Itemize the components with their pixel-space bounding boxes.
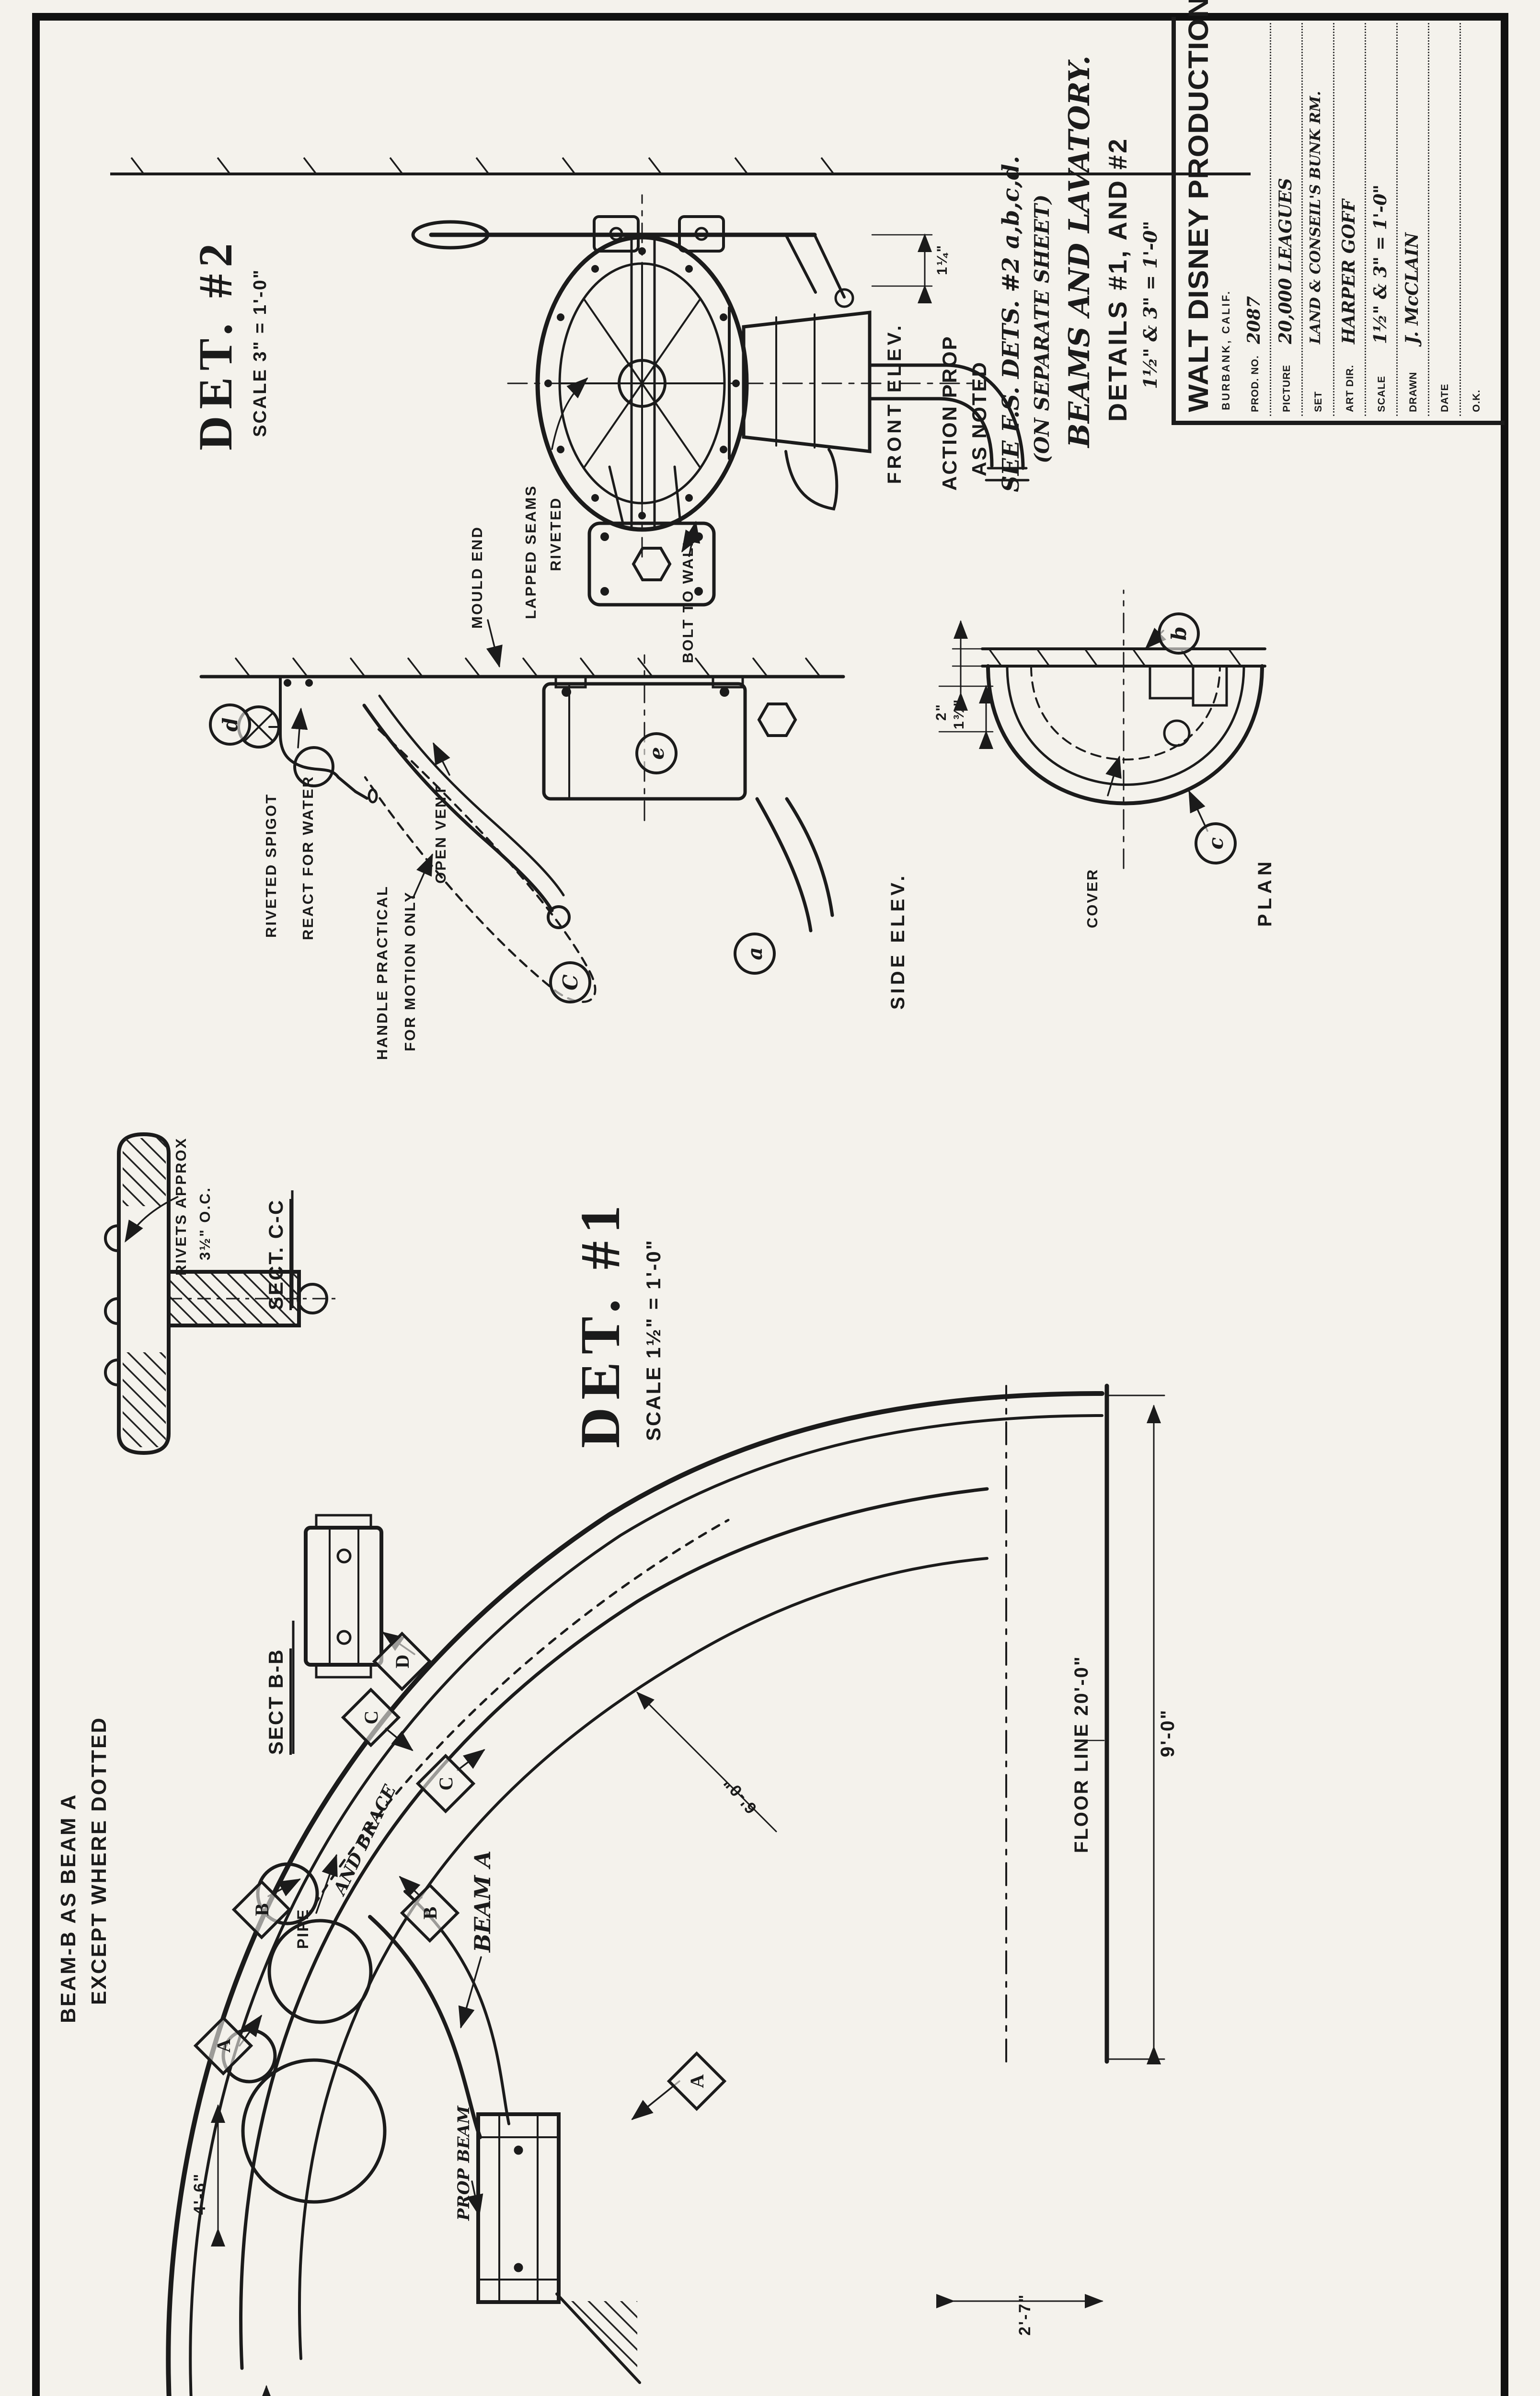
beam-a-label: BEAM A: [470, 1851, 495, 1952]
title-block-row: O.K.: [1460, 23, 1491, 416]
side-dim: 1¾": [951, 698, 967, 729]
det1-scale: SCALE 1½" = 1'-0": [642, 1239, 665, 1441]
side-elev-spigot: [201, 620, 993, 1002]
marker-letter: B: [419, 1907, 441, 1920]
row-label: DRAWN: [1408, 372, 1419, 412]
hull-inner-plate: [190, 1416, 1102, 2396]
note-separate-sheet: (ON SEPARATE SHEET): [1030, 195, 1054, 463]
row-label: PROD. NO.: [1250, 355, 1261, 412]
balloon-a: a: [734, 933, 776, 975]
title-block: WALT DISNEY PRODUCTIONS BURBANK, CALIF. …: [1172, 17, 1505, 425]
note-details-1-2: DETAILS #1, AND #2: [1103, 137, 1133, 422]
row-label: O.K.: [1471, 390, 1483, 412]
beam-note-line1: BEAM-B AS BEAM A: [57, 1793, 80, 2023]
row-value: 20,000 LEAGUES: [1276, 178, 1296, 344]
pump-handle: [413, 217, 853, 307]
beam-band-outer: [241, 1489, 987, 2368]
marker-letter: A: [685, 2074, 708, 2088]
front-dim: 1¼": [934, 244, 951, 275]
row-label: ART DIR.: [1345, 365, 1356, 412]
balloon-letter: a: [743, 947, 767, 960]
note-action-prop: ACTION PROP: [938, 335, 961, 491]
rivets-note-line1: RIVETS APPROX: [172, 1137, 190, 1276]
det2-scale: SCALE 3" = 1'-0": [250, 268, 271, 437]
mould-end-label: MOULD END: [469, 526, 486, 629]
row-label: DATE: [1439, 383, 1451, 412]
row-label: SET: [1313, 391, 1324, 412]
lapped-seams-line1: LAPPED SEAMS: [522, 484, 540, 619]
row-value: 2087: [1244, 296, 1264, 344]
prop-beam-drawing: [478, 2114, 559, 2302]
row-value: 1½" & 3" = 1'-0": [1370, 184, 1391, 344]
beam-note-line2: EXCEPT WHERE DOTTED: [87, 1716, 111, 2005]
bolt-to-wall-label: BOLT TO WALL: [679, 536, 697, 663]
balloon-letter: C: [559, 974, 582, 990]
balloon-letter: e: [645, 747, 668, 760]
balloon-b: b: [1158, 612, 1200, 655]
det1-title: DET. #1: [568, 1198, 633, 1448]
front-elev-title: FRONT ELEV.: [884, 322, 906, 484]
handle-practical-line1: HANDLE PRACTICAL: [374, 885, 391, 1060]
prop-beam-label: PROP BEAM: [454, 2106, 473, 2221]
sect-bb-label: SECT B-B: [264, 1648, 292, 1755]
title-block-row: SCALE 1½" & 3" = 1'-0": [1365, 23, 1398, 416]
marker-letter: C: [434, 1777, 457, 1791]
plan-title: PLAN: [1254, 857, 1276, 927]
row-value: LAND & CONSEIL'S BUNK RM.: [1307, 91, 1324, 344]
row-label: PICTURE: [1281, 365, 1293, 412]
title-block-row: DRAWN J. McCLAIN: [1396, 23, 1429, 416]
lapped-seams-line2: RIVETED: [547, 497, 564, 571]
company-location: BURBANK, CALIF.: [1220, 289, 1232, 410]
det1-dimension-lines: [218, 1395, 1164, 2396]
side-elev-title: SIDE ELEV.: [887, 873, 909, 1010]
handle-swing-dotted: [365, 729, 595, 1002]
floor-line-label: FLOOR LINE 20'-0": [1071, 1655, 1092, 1853]
rivets-note-line2: 3½" O.C.: [196, 1186, 214, 1260]
company-name: WALT DISNEY PRODUCTIONS: [1183, 0, 1215, 412]
sect-cc-label: SECT. C-C: [264, 1199, 292, 1310]
det1-hull-section: [168, 1386, 1164, 2396]
drawing-sheet: DET. #1 SCALE 1½" = 1'-0" BEAM-B AS BEAM…: [0, 0, 1540, 2396]
balloon-C: C: [549, 961, 591, 1003]
pipe-label: PIPE: [294, 1908, 312, 1949]
title-block-row: DATE: [1428, 23, 1461, 416]
marker-letter: D: [391, 1655, 413, 1669]
note-scales: 1½" & 3" = 1'-0": [1139, 221, 1161, 389]
dim-2-7: 2'-7": [1016, 2293, 1034, 2336]
dim-4-6: 4'-6": [191, 2173, 209, 2215]
riveted-spigot-line1: RIVETED SPIGOT: [263, 793, 280, 938]
balloon-d: d: [209, 703, 251, 746]
title-block-row: PROD. NO. 2087: [1238, 23, 1271, 416]
balloon-e: e: [635, 732, 678, 774]
row-value: J. McCLAIN: [1402, 232, 1422, 344]
marker-letter: C: [359, 1711, 382, 1725]
cover-label: COVER: [1084, 868, 1101, 928]
balloon-letter: c: [1204, 837, 1228, 850]
note-beams-lavatory: BEAMS AND LAVATORY.: [1063, 56, 1096, 448]
det2-title: DET. #2: [188, 237, 243, 450]
note-as-noted: AS NOTED: [968, 361, 991, 476]
marker-letter: A: [212, 2039, 234, 2053]
row-label: SCALE: [1376, 376, 1388, 412]
open-vent-label: OPEN VENT: [432, 785, 449, 884]
sect-cc-tbeam-drawing: [105, 1134, 335, 1453]
marker-letter: B: [251, 1903, 273, 1916]
balloon-letter: d: [218, 717, 242, 731]
hull-outer-plate: [168, 1394, 1102, 2396]
riveted-spigot-line2: REACT FOR WATER: [299, 775, 317, 940]
title-block-row: ART DIR. HARPER GOFF: [1333, 23, 1366, 416]
scanned-blueprint-page: DET. #1 SCALE 1½" = 1'-0" BEAM-B AS BEAM…: [0, 0, 1540, 2396]
dim-9-0: 9'-0": [1157, 1709, 1179, 1757]
title-block-row: PICTURE 20,000 LEAGUES: [1270, 23, 1303, 416]
ground-hatch: [557, 2294, 640, 2383]
note-see-fs-dets: SEE F.S. DETS. #2 a,b,c,d.: [998, 156, 1024, 492]
row-value: HARPER GOFF: [1339, 199, 1359, 344]
plan-dim: 2": [933, 703, 950, 721]
handle-practical-line2: FOR MOTION ONLY: [402, 891, 419, 1051]
balloon-c: c: [1195, 822, 1237, 864]
title-block-row: SET LAND & CONSEIL'S BUNK RM.: [1301, 23, 1334, 416]
balloon-letter: b: [1167, 626, 1191, 640]
front-wall-hatch: [131, 158, 834, 174]
